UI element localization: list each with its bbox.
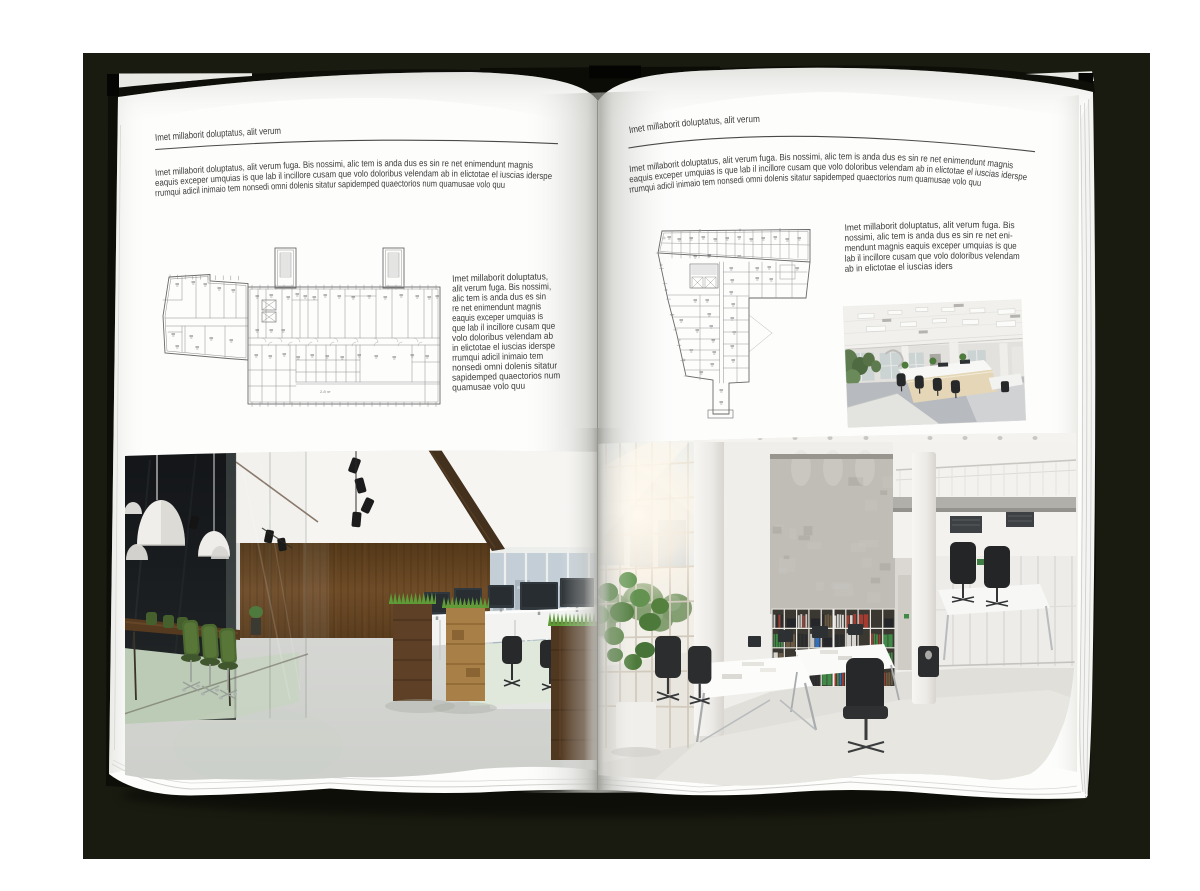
svg-text:2-й эт: 2-й эт bbox=[320, 389, 331, 394]
svg-text:quamusae volo quu: quamusae volo quu bbox=[452, 381, 525, 393]
